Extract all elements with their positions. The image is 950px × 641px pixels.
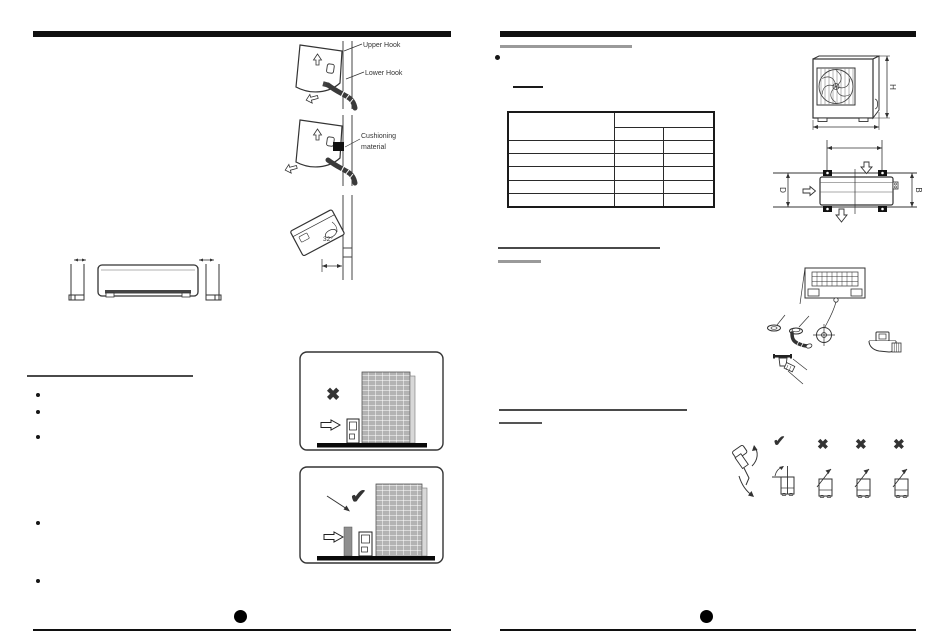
cushioning-label-line1: Cushioning [361, 133, 396, 140]
tilt-angle-label: 32° [323, 235, 333, 243]
left-page-footer-rule [33, 629, 451, 631]
right-page-header-rule [500, 31, 916, 37]
direction-arrow-icon [305, 93, 319, 105]
table-cell [663, 166, 714, 180]
table-cell [663, 153, 714, 166]
table-cell [614, 153, 663, 166]
seal-washer [768, 315, 786, 331]
outdoor-unit-top-view: D B [765, 138, 930, 230]
lower-hook-label: Lower Hook [365, 70, 403, 77]
siting-wrong-illustration: ✖ [298, 350, 446, 454]
table-cell [508, 180, 614, 193]
drain-hole-target [813, 324, 835, 346]
right-page-footer-rule [500, 629, 916, 631]
drain-elbow [790, 316, 813, 349]
handling-wrong-mark: ✖ [893, 436, 905, 452]
indoor-unit-upper-hook-view: Upper Hook Lower Hook [296, 42, 403, 108]
handling-marks-diagram: ✔ ✖ ✖ ✖ [718, 422, 928, 507]
direction-arrow-icon [284, 163, 298, 175]
manual-spread: Upper Hook Lower Hook Cushioning materia… [0, 0, 950, 641]
handling-wrong-mark: ✖ [817, 436, 829, 452]
ground [317, 556, 435, 561]
table-cell [614, 127, 663, 140]
left-section-heading-underline [27, 375, 193, 377]
airflow-arrow-icon [803, 187, 816, 196]
upper-hook-label: Upper Hook [363, 42, 401, 49]
table-cell [614, 140, 663, 153]
building [376, 484, 422, 556]
left-page-number-dot [234, 610, 247, 623]
outdoor-unit [347, 419, 359, 443]
right-page-number-dot [700, 610, 713, 623]
table-cell [614, 193, 663, 207]
valve-figure-wrong [855, 469, 870, 498]
bullet [36, 410, 40, 414]
windbreak-wall [344, 527, 352, 556]
bullet [36, 579, 40, 583]
right-section2-subheading-underline [498, 260, 541, 263]
tilt-angle-diagram: 32° [283, 195, 408, 280]
airflow-arrow-icon [861, 162, 872, 174]
cushioning-label-line2: material [361, 144, 386, 151]
handling-ok-mark: ✔ [773, 433, 786, 450]
hand-tool [732, 445, 758, 497]
table-cell [508, 153, 614, 166]
right-section3-subheading-underline [499, 422, 542, 424]
hook-mounting-diagram: Upper Hook Lower Hook Cushioning materia… [283, 38, 463, 190]
table-cell [508, 112, 614, 140]
table-cell [614, 166, 663, 180]
right-section1-heading-underline [500, 45, 632, 48]
valve-figure-wrong [817, 469, 832, 498]
dim-d-label: D [778, 187, 787, 193]
indoor-unit-cushioning-view: Cushioning material [284, 120, 396, 183]
drain-fitting-diagram [755, 258, 930, 390]
indoor-unit-front-view [60, 250, 230, 310]
right-section3-heading-underline [499, 409, 687, 411]
table-cell [508, 140, 614, 153]
outdoor-unit [359, 532, 372, 556]
table-cell [614, 112, 714, 127]
dim-b-label: B [914, 187, 923, 192]
correct-mark: ✔ [350, 486, 367, 508]
cushioning-block [333, 142, 344, 151]
right-section2-heading-underline [498, 247, 660, 249]
bullet [495, 55, 500, 60]
bullet [36, 521, 40, 525]
siting-correct-illustration: ✔ [298, 465, 446, 567]
bullet [36, 393, 40, 397]
table-cell [508, 166, 614, 180]
handling-wrong-mark: ✖ [855, 436, 867, 452]
wrong-mark: ✖ [326, 385, 340, 404]
bullet [36, 435, 40, 439]
table-cell [663, 193, 714, 207]
table-cell [663, 180, 714, 193]
drain-plug [773, 354, 807, 384]
table-cell [614, 180, 663, 193]
left-page-header-rule [33, 31, 451, 37]
table-cell [663, 127, 714, 140]
airflow-arrow-icon [836, 209, 847, 222]
table-cell [663, 140, 714, 153]
inline-underline [513, 86, 543, 88]
spec-table [507, 111, 715, 208]
drain-connector [869, 332, 901, 352]
building [362, 372, 410, 443]
table-cell [508, 193, 614, 207]
outdoor-unit-front-view: H [800, 48, 912, 136]
valve-figure-wrong [893, 469, 908, 498]
dim-h-label: H [888, 84, 897, 90]
valve-figure-correct [772, 466, 794, 496]
ground [317, 443, 427, 448]
